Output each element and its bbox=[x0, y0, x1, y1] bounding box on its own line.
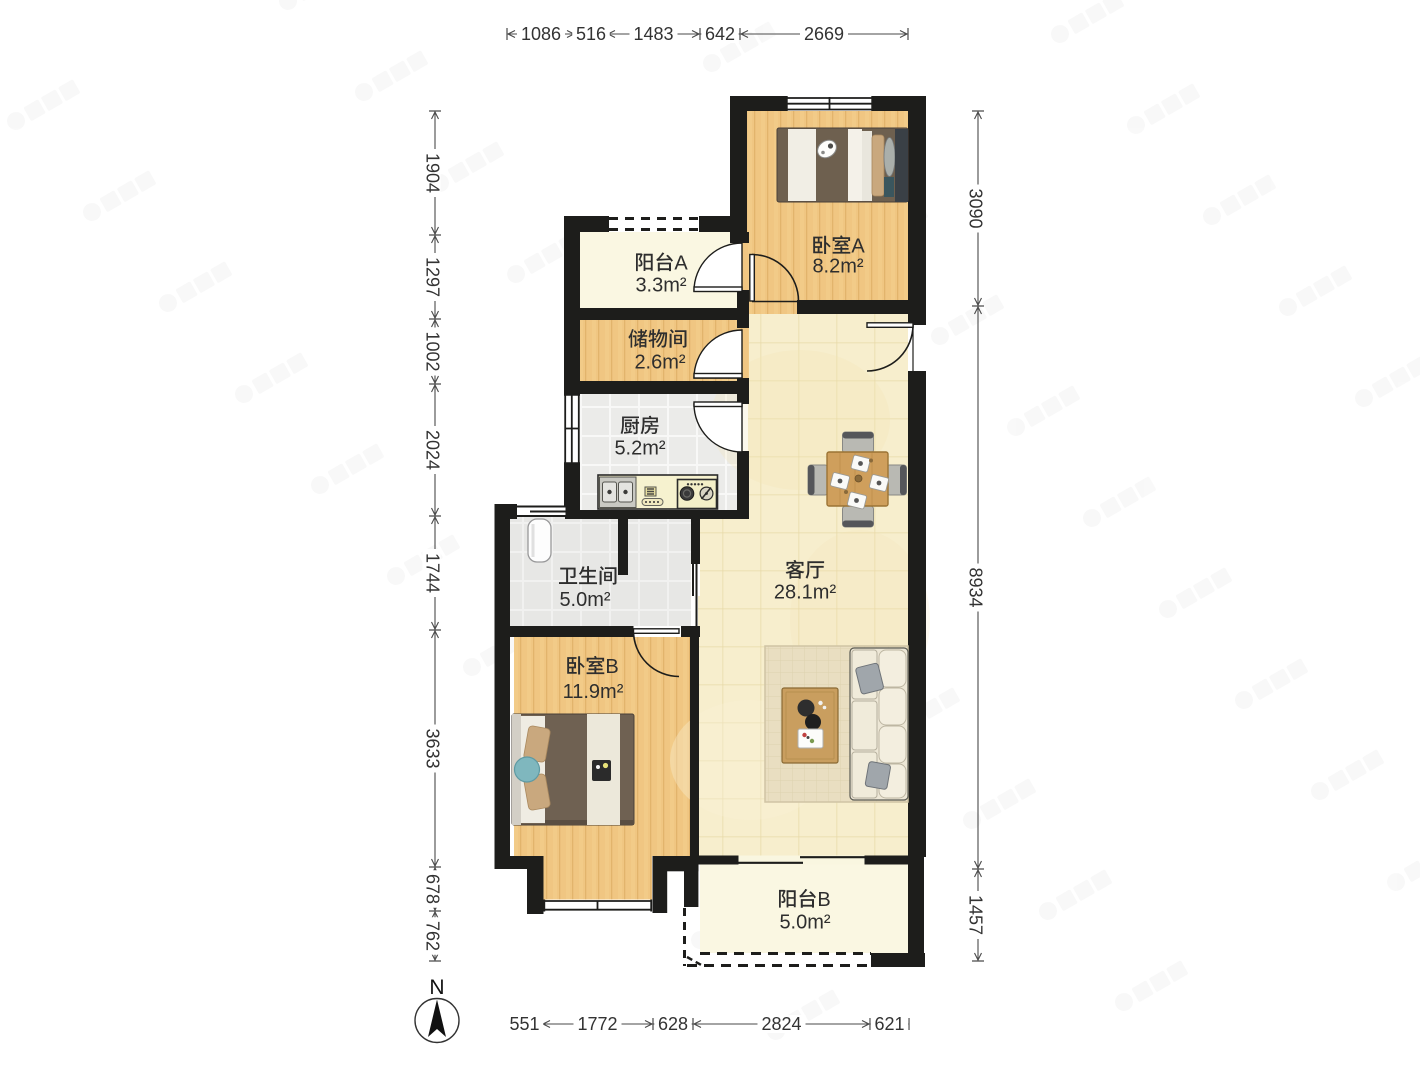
svg-text:N: N bbox=[429, 976, 444, 999]
svg-text:28.1m²: 28.1m² bbox=[774, 582, 837, 604]
svg-text:B: B bbox=[605, 656, 618, 678]
svg-text:1002: 1002 bbox=[423, 331, 443, 371]
svg-text:1904: 1904 bbox=[423, 153, 443, 193]
svg-text:642: 642 bbox=[705, 24, 735, 44]
svg-text:2.6m²: 2.6m² bbox=[634, 352, 685, 374]
svg-text:1483: 1483 bbox=[633, 24, 673, 44]
svg-text:1772: 1772 bbox=[577, 1014, 617, 1034]
svg-text:2024: 2024 bbox=[423, 430, 443, 470]
svg-text:762: 762 bbox=[423, 921, 443, 951]
svg-text:1086: 1086 bbox=[521, 24, 561, 44]
svg-text:621: 621 bbox=[874, 1014, 904, 1034]
svg-text:A: A bbox=[674, 253, 688, 275]
svg-text:B: B bbox=[817, 889, 830, 911]
svg-text:5.0m²: 5.0m² bbox=[559, 589, 610, 611]
svg-text:2824: 2824 bbox=[761, 1014, 801, 1034]
svg-text:516: 516 bbox=[576, 24, 606, 44]
svg-text:3633: 3633 bbox=[423, 728, 443, 768]
svg-text:8934: 8934 bbox=[966, 567, 986, 607]
svg-text:11.9m²: 11.9m² bbox=[563, 681, 624, 703]
svg-text:551: 551 bbox=[509, 1014, 539, 1034]
svg-text:3.3m²: 3.3m² bbox=[635, 275, 686, 297]
svg-text:1297: 1297 bbox=[423, 257, 443, 297]
svg-text:3090: 3090 bbox=[966, 188, 986, 228]
svg-text:1457: 1457 bbox=[966, 895, 986, 935]
svg-text:5.0m²: 5.0m² bbox=[779, 912, 830, 934]
svg-text:628: 628 bbox=[658, 1014, 688, 1034]
svg-text:A: A bbox=[851, 236, 865, 258]
svg-text:2669: 2669 bbox=[804, 24, 844, 44]
svg-text:678: 678 bbox=[423, 874, 443, 904]
svg-text:8.2m²: 8.2m² bbox=[812, 256, 863, 278]
svg-text:1744: 1744 bbox=[423, 553, 443, 593]
svg-text:5.2m²: 5.2m² bbox=[614, 438, 665, 460]
